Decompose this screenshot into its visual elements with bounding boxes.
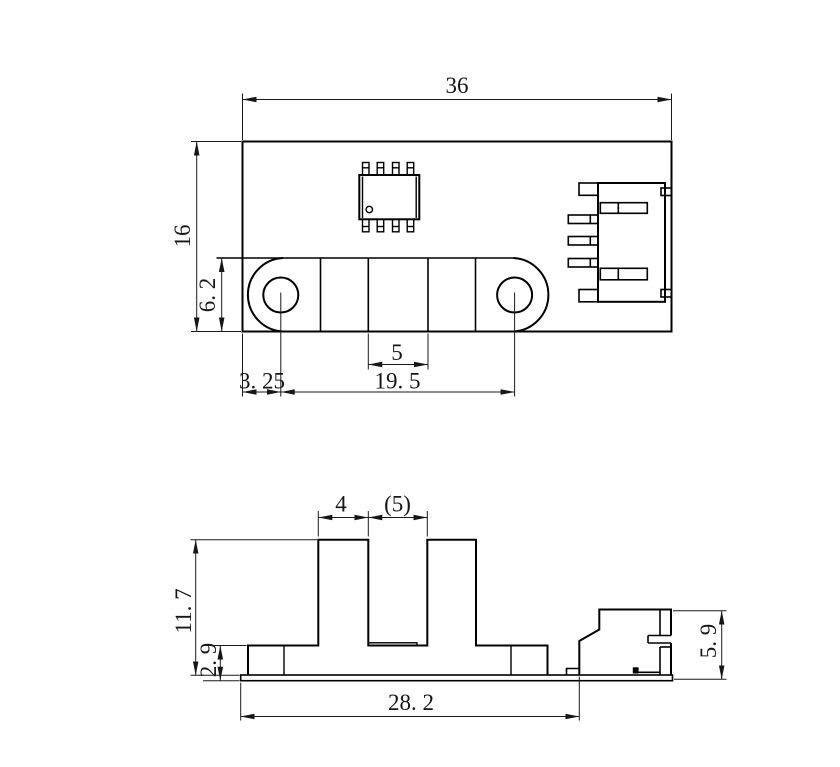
connector-top-view [568, 183, 671, 302]
dim-label-28-2: 28. 2 [388, 690, 434, 715]
dimension-tower-and-gap: 4 (5) [318, 492, 427, 537]
ic-bottom-pins [363, 219, 414, 232]
connector-side-view [567, 610, 672, 676]
ic-pin1-dot [366, 206, 372, 212]
dim-label-19-5: 19. 5 [375, 369, 421, 394]
engineering-drawing: 36 16 6. 2 5 3. 25 19. 5 [0, 0, 840, 767]
connector-clip-bottom-right [661, 290, 672, 298]
slot-left-arc [248, 258, 283, 332]
front-view: 4 (5) 11. 7 2. 9 5. 9 [171, 492, 727, 721]
dimension-body-width: 28. 2 [241, 677, 580, 721]
dim-label-5: 5 [391, 340, 403, 365]
connector-tab-top-left [579, 183, 598, 195]
dim-label-6-2: 6. 2 [195, 278, 220, 313]
connector-latch-top [600, 203, 647, 214]
dimension-slot-band-height: 6. 2 [195, 258, 222, 332]
connector-clip-top-right [661, 188, 672, 196]
dimension-overall-width: 36 [243, 73, 672, 140]
slot-right-arc [514, 258, 549, 332]
dim-label-3-25: 3. 25 [239, 369, 285, 394]
dim-label-5-9: 5. 9 [696, 624, 721, 659]
mounting-slot-band [217, 258, 549, 332]
ic-top-pins [363, 163, 414, 176]
dim-label-11-7: 11. 7 [171, 588, 196, 633]
dim-label-36: 36 [446, 73, 469, 98]
top-view: 36 16 6. 2 5 3. 25 19. 5 [170, 73, 672, 397]
dim-label-5-ref: (5) [384, 492, 411, 517]
dimension-connector-height: 5. 9 [673, 611, 727, 680]
connector-pins [568, 215, 598, 267]
sensor-body-profile [248, 540, 548, 675]
pcb-outline [243, 142, 672, 332]
dimension-body-height: 11. 7 [171, 540, 317, 676]
connector-solder-pin [633, 667, 639, 673]
dim-label-2-9: 2. 9 [196, 643, 221, 678]
soic8-ic [359, 163, 419, 232]
dim-label-16: 16 [170, 225, 195, 248]
connector-latch-bottom [600, 268, 647, 280]
slot-window-lip [368, 643, 417, 646]
pcb-strip-side [241, 675, 673, 681]
drawing-canvas: 36 16 6. 2 5 3. 25 19. 5 [0, 0, 840, 767]
connector-tab-bottom-left [579, 290, 598, 302]
connector-body [598, 183, 665, 302]
dimension-slot-width: 5 [368, 334, 428, 370]
dim-label-4: 4 [335, 492, 347, 517]
connector-foot-step [567, 669, 580, 676]
